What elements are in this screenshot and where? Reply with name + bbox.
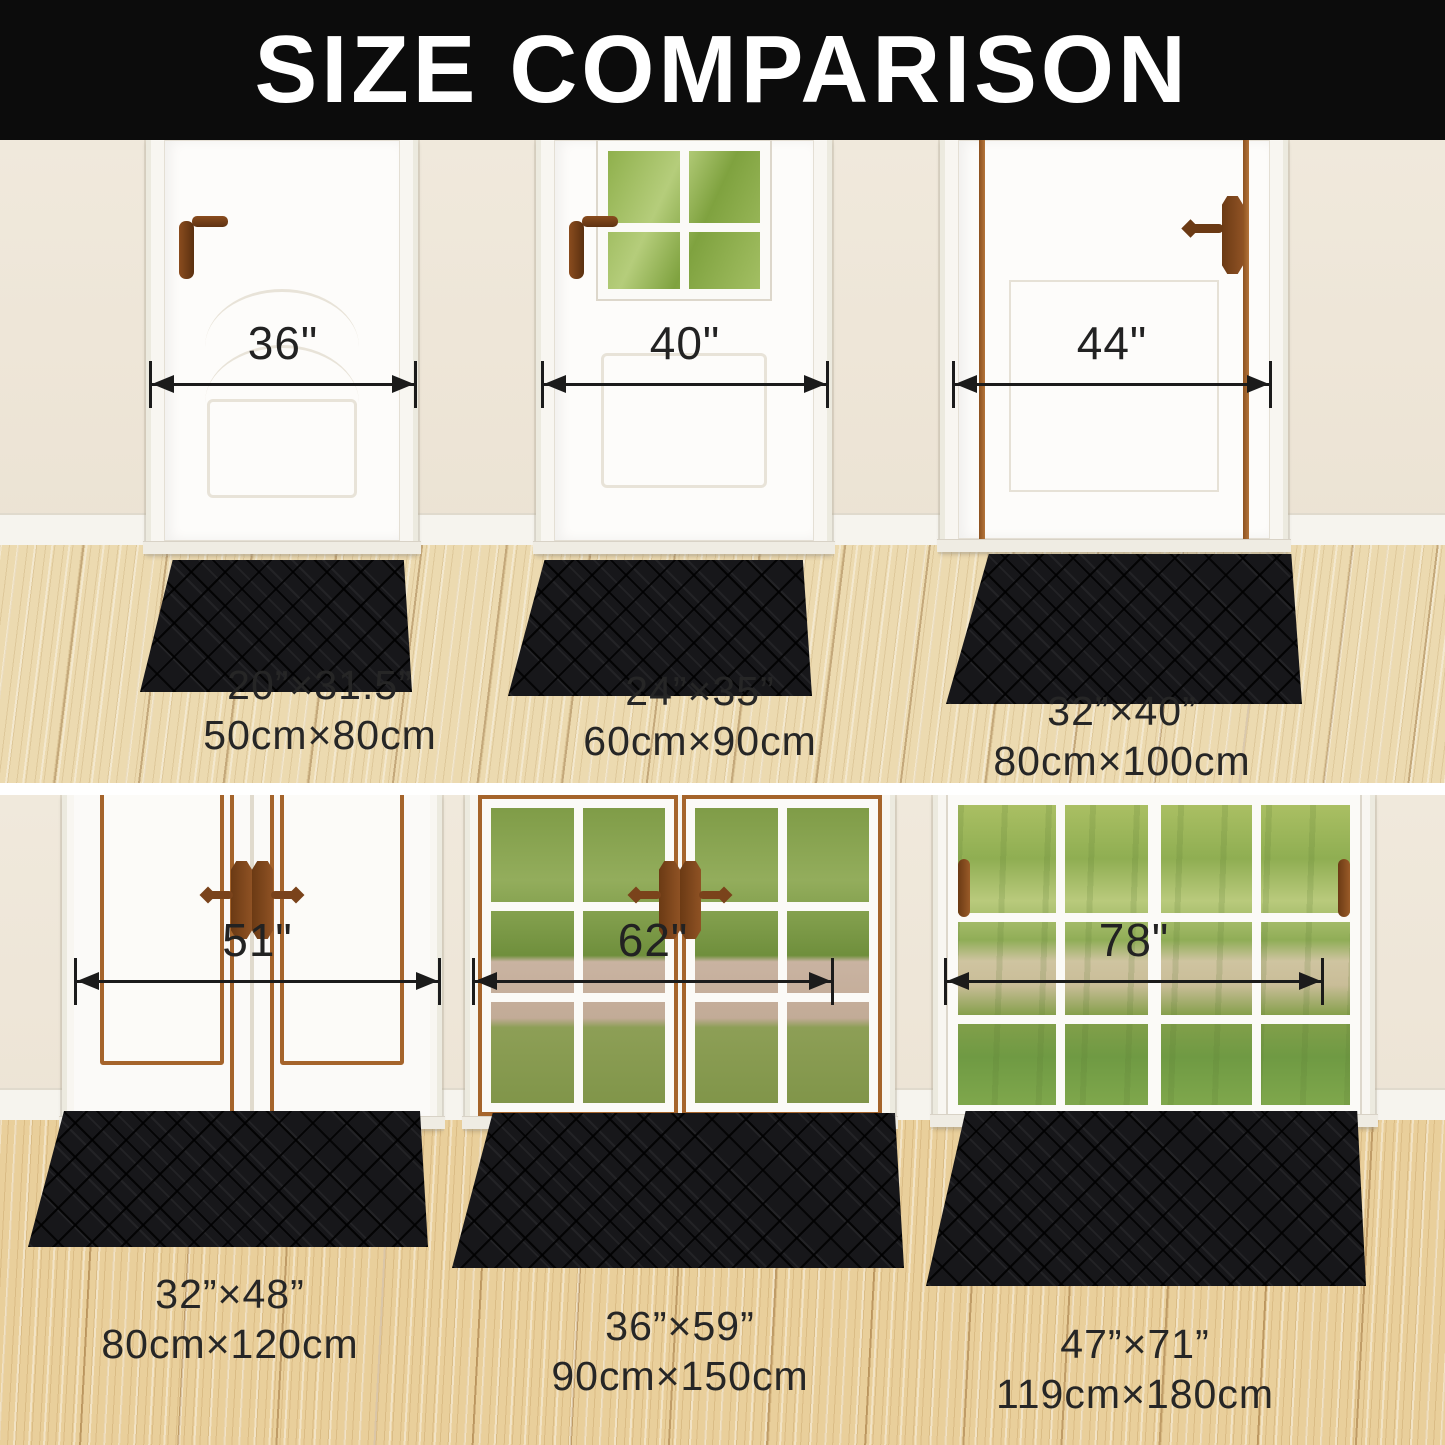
door-threshold — [143, 541, 421, 554]
mat-size-label: 36”×59” 90cm×150cm — [480, 1301, 880, 1401]
window-mullion — [491, 993, 665, 1002]
width-arrow — [542, 383, 828, 386]
window-mullion — [680, 151, 689, 289]
window-mullion — [958, 1015, 1350, 1024]
door-handle-icon — [958, 859, 970, 917]
door-threshold — [937, 539, 1291, 552]
width-arrow — [150, 383, 416, 386]
width-arrow — [945, 980, 1323, 983]
mat-size-label: 32”×48” 80cm×120cm — [30, 1269, 430, 1369]
door-panel — [207, 399, 357, 498]
measurement-label: 51" — [75, 913, 440, 967]
measurement-label: 36" — [150, 316, 416, 370]
measurement-51: 51" — [75, 913, 440, 983]
measurement-label: 40" — [542, 316, 828, 370]
doormat-47x71 — [926, 1111, 1366, 1286]
mat-size-label: 24”×35” 60cm×90cm — [500, 666, 900, 766]
doormat-32x40 — [946, 554, 1302, 704]
door-handle-icon — [1222, 196, 1243, 274]
mat-size-label: 32”×40” 80cm×100cm — [922, 686, 1322, 783]
door-handle-lever — [1191, 224, 1223, 233]
single-doors-scene: 36" 40" 44" 20”×31.5” 5 — [0, 140, 1445, 783]
title-banner: SIZE COMPARISON — [0, 0, 1445, 140]
doormat-32x48 — [28, 1111, 428, 1247]
mat-size-label: 47”×71” 119cm×180cm — [935, 1319, 1335, 1419]
window-mullion — [695, 993, 869, 1002]
measurement-62: 62" — [473, 913, 833, 983]
width-arrow — [473, 980, 833, 983]
measurement-label: 62" — [473, 913, 833, 967]
doormat-36x59 — [452, 1113, 904, 1268]
measurement-78: 78" — [945, 913, 1323, 983]
door-threshold — [533, 541, 835, 554]
measurement-36: 36" — [150, 316, 416, 386]
page-title: SIZE COMPARISON — [255, 15, 1190, 125]
door-panel — [1009, 280, 1219, 492]
door-handle-icon — [179, 216, 243, 282]
measurement-label: 78" — [945, 913, 1323, 967]
door-handle-icon — [569, 216, 633, 282]
mat-size-label: 20”×31.5” 50cm×80cm — [120, 660, 520, 760]
door-handle-icon — [1338, 859, 1350, 917]
section-divider — [0, 783, 1445, 795]
double-doors-scene: 51" 62" 78" 32”×48” 80c — [0, 795, 1445, 1445]
measurement-44: 44" — [953, 316, 1271, 386]
size-comparison-graphic: SIZE COMPARISON — [0, 0, 1445, 1445]
width-arrow — [75, 980, 440, 983]
measurement-label: 44" — [953, 316, 1271, 370]
width-arrow — [953, 383, 1271, 386]
measurement-40: 40" — [542, 316, 828, 386]
